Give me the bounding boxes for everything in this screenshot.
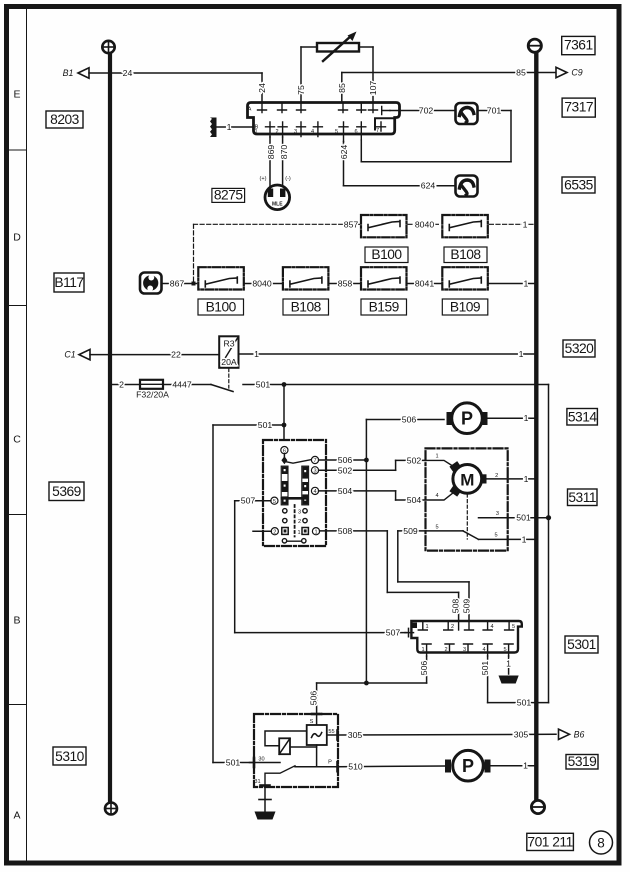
svg-text:R3: R3 (223, 339, 234, 349)
svg-text:A: A (13, 810, 20, 822)
svg-text:85: 85 (337, 83, 347, 93)
svg-text:B108: B108 (450, 247, 481, 262)
svg-text:5: 5 (494, 533, 497, 539)
svg-text:A: A (248, 107, 252, 113)
svg-text:31: 31 (254, 779, 260, 785)
svg-text:5: 5 (335, 129, 338, 135)
svg-text:1: 1 (421, 647, 424, 653)
svg-text:701 211: 701 211 (527, 835, 572, 850)
svg-text:506: 506 (309, 691, 319, 706)
svg-text:20A: 20A (221, 357, 237, 367)
svg-text:B100: B100 (371, 247, 402, 262)
svg-text:508: 508 (451, 599, 461, 614)
svg-text:F32/20A: F32/20A (136, 390, 169, 400)
svg-text:7361: 7361 (564, 38, 593, 53)
svg-text:502: 502 (338, 465, 353, 475)
svg-text:4: 4 (313, 489, 316, 495)
svg-text:B: B (13, 615, 20, 627)
svg-text:2: 2 (495, 473, 498, 479)
svg-text:305: 305 (514, 729, 529, 739)
svg-text:5320: 5320 (565, 341, 595, 356)
svg-text:510: 510 (348, 762, 363, 772)
svg-text:701: 701 (487, 106, 502, 116)
svg-text:7317: 7317 (564, 100, 593, 115)
svg-text:857: 857 (344, 219, 359, 229)
svg-text:5314: 5314 (568, 410, 598, 425)
svg-text:1: 1 (227, 122, 232, 132)
svg-text:S: S (310, 719, 314, 725)
svg-text:4: 4 (482, 647, 485, 653)
svg-text:4: 4 (311, 129, 314, 135)
svg-text:1: 1 (524, 474, 529, 484)
svg-text:22: 22 (171, 350, 181, 360)
svg-text:1: 1 (254, 349, 259, 359)
svg-text:M: M (460, 470, 474, 489)
svg-text:2: 2 (451, 624, 454, 630)
svg-text:501: 501 (480, 661, 490, 676)
svg-text:869: 869 (266, 145, 276, 160)
svg-text:2: 2 (119, 380, 124, 390)
svg-text:5301: 5301 (567, 637, 596, 652)
svg-text:509: 509 (462, 599, 472, 614)
svg-text:107: 107 (368, 81, 378, 96)
svg-text:2: 2 (273, 529, 276, 535)
svg-text:702: 702 (419, 106, 434, 116)
svg-text:1: 1 (435, 453, 438, 459)
svg-text:E: E (13, 89, 20, 101)
svg-text:858: 858 (338, 279, 353, 289)
svg-text:506: 506 (419, 661, 429, 676)
svg-text:C: C (13, 434, 21, 446)
svg-text:1: 1 (523, 219, 528, 229)
svg-text:8203: 8203 (50, 112, 80, 127)
svg-text:24: 24 (257, 83, 267, 93)
svg-text:C1: C1 (64, 350, 75, 360)
svg-text:2: 2 (298, 519, 301, 525)
svg-text:B159: B159 (369, 300, 400, 315)
svg-text:3: 3 (496, 511, 499, 517)
svg-text:1: 1 (254, 129, 257, 135)
svg-text:B100: B100 (206, 300, 237, 315)
svg-text:5: 5 (512, 624, 515, 630)
svg-text:5369: 5369 (52, 484, 82, 499)
svg-text:30: 30 (258, 757, 264, 763)
svg-text:B1: B1 (63, 68, 74, 78)
svg-text:4: 4 (435, 493, 438, 499)
svg-text:2: 2 (444, 647, 447, 653)
svg-text:1: 1 (523, 761, 528, 771)
svg-text:504: 504 (407, 495, 422, 505)
svg-text:870: 870 (279, 145, 289, 160)
svg-text:501: 501 (517, 698, 532, 708)
svg-text:(+): (+) (260, 176, 267, 182)
svg-text:C9: C9 (571, 68, 582, 78)
svg-text:1: 1 (519, 349, 524, 359)
svg-text:5319: 5319 (568, 754, 598, 769)
svg-text:624: 624 (339, 145, 349, 160)
svg-text:5: 5 (435, 524, 438, 530)
svg-text:8040: 8040 (252, 279, 271, 289)
svg-text:D: D (13, 232, 21, 244)
svg-text:85: 85 (516, 68, 526, 78)
svg-text:502: 502 (407, 455, 422, 465)
svg-text:8040: 8040 (415, 219, 434, 229)
svg-text:3: 3 (294, 129, 297, 135)
svg-text:1: 1 (523, 279, 528, 289)
svg-text:507: 507 (386, 628, 401, 638)
svg-text:B109: B109 (450, 300, 481, 315)
svg-text:7: 7 (376, 128, 379, 134)
svg-text:1: 1 (314, 529, 317, 535)
svg-text:305: 305 (348, 730, 363, 740)
svg-text:508: 508 (338, 526, 353, 536)
svg-text:6535: 6535 (564, 178, 594, 193)
svg-text:501: 501 (258, 420, 273, 430)
svg-text:1: 1 (522, 534, 527, 544)
svg-text:8275: 8275 (214, 187, 244, 202)
svg-text:8041: 8041 (415, 279, 434, 289)
svg-text:506: 506 (402, 415, 417, 425)
svg-text:3: 3 (298, 509, 301, 515)
svg-text:509: 509 (403, 526, 418, 536)
svg-text:3: 3 (463, 647, 466, 653)
svg-text:P: P (462, 756, 474, 776)
svg-text:MLE: MLE (272, 202, 283, 208)
svg-text:8: 8 (597, 836, 605, 851)
svg-text:501: 501 (226, 758, 241, 768)
svg-text:504: 504 (338, 486, 353, 496)
svg-text:(-): (-) (285, 176, 291, 182)
svg-text:867: 867 (170, 279, 185, 289)
svg-text:55: 55 (328, 729, 334, 735)
svg-text:501: 501 (256, 380, 271, 390)
svg-text:4: 4 (490, 624, 493, 630)
svg-text:1: 1 (506, 659, 511, 669)
svg-text:5: 5 (503, 647, 506, 653)
svg-text:5311: 5311 (568, 490, 596, 505)
svg-text:501: 501 (516, 513, 531, 523)
svg-text:6: 6 (354, 129, 357, 135)
svg-text:506: 506 (338, 455, 353, 465)
svg-text:P: P (461, 409, 473, 429)
svg-text:B117: B117 (54, 275, 83, 290)
svg-text:B108: B108 (291, 300, 322, 315)
svg-text:5: 5 (273, 499, 276, 505)
svg-text:75: 75 (296, 85, 306, 95)
svg-text:1: 1 (425, 624, 428, 630)
svg-text:1: 1 (297, 530, 300, 536)
svg-text:507: 507 (241, 496, 256, 506)
svg-text:4447: 4447 (172, 380, 191, 390)
svg-text:7: 7 (313, 458, 316, 464)
svg-text:24: 24 (123, 68, 133, 78)
svg-text:3: 3 (313, 469, 316, 475)
svg-text:624: 624 (421, 181, 436, 191)
svg-text:5310: 5310 (55, 749, 85, 764)
svg-text:P: P (328, 760, 332, 766)
svg-text:2: 2 (275, 129, 278, 135)
svg-text:1: 1 (524, 413, 529, 423)
svg-text:B6: B6 (574, 730, 585, 740)
